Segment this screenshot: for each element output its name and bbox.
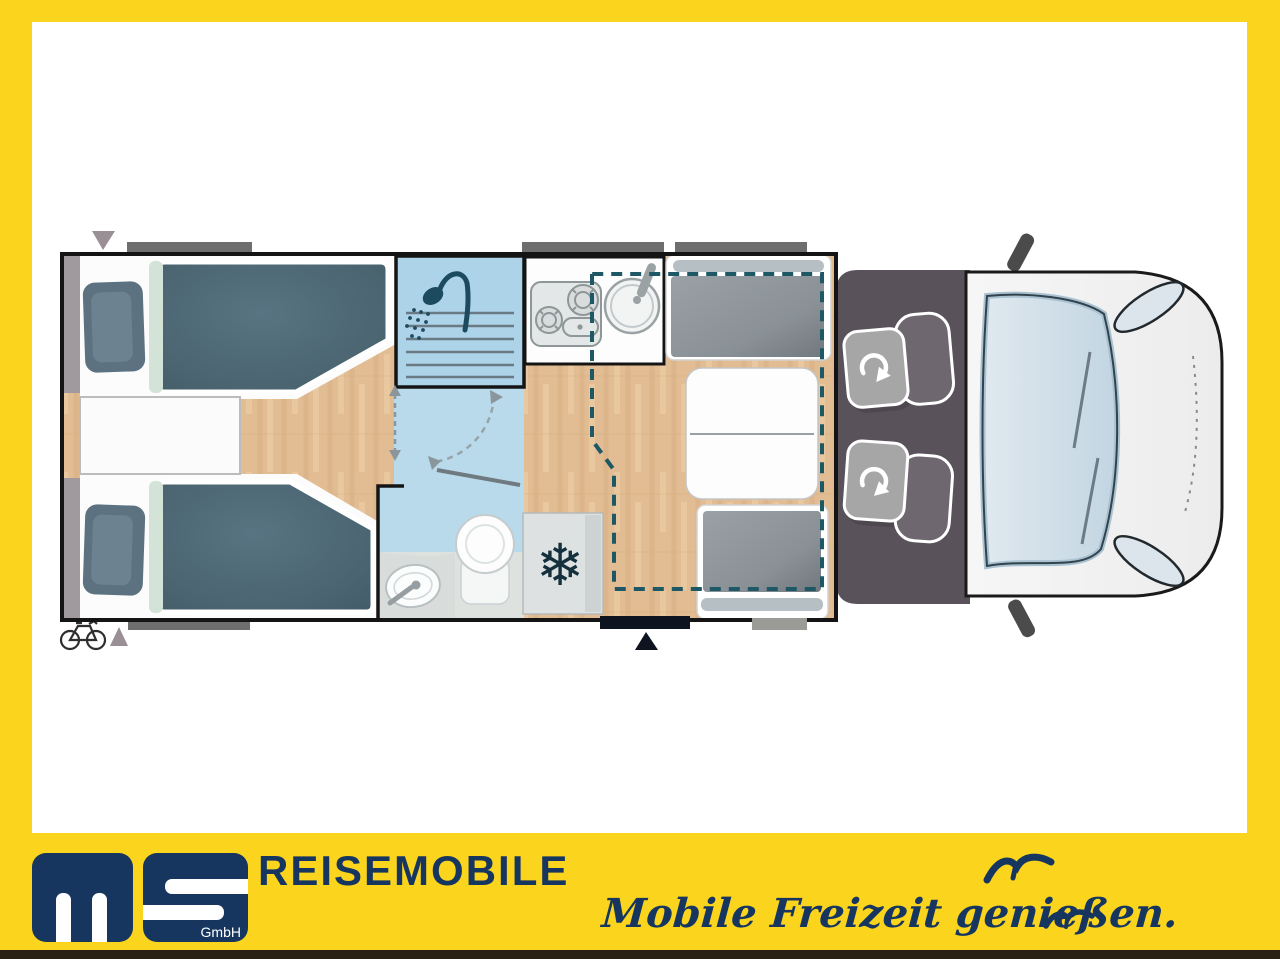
mirror-bottom-icon bbox=[1006, 597, 1037, 639]
headboard-bottom bbox=[149, 481, 163, 613]
toilet bbox=[456, 515, 514, 604]
snowflake-icon: ❄ bbox=[536, 531, 585, 599]
marker-triangle-bottom bbox=[110, 627, 128, 646]
dinette-rear-bench bbox=[666, 255, 831, 360]
bottom-dark-strip bbox=[0, 950, 1280, 959]
refrigerator: ❄ bbox=[523, 513, 603, 614]
wardrobe-strip-bottom bbox=[64, 478, 82, 619]
seagull-icon-large bbox=[983, 850, 1055, 888]
entry-door bbox=[600, 616, 690, 629]
logo-m-block bbox=[32, 853, 133, 942]
logo-gmbh-label: GmbH bbox=[201, 924, 241, 940]
dealer-floorplan-card: ❄ bbox=[0, 0, 1280, 959]
nightstand bbox=[80, 397, 240, 474]
wardrobe-strip-top bbox=[64, 256, 82, 393]
dinette-front-bench bbox=[697, 505, 828, 619]
ms-logo: GmbH bbox=[32, 853, 248, 943]
windshield bbox=[983, 295, 1118, 566]
logo-s-block: GmbH bbox=[136, 853, 248, 942]
dinette-table bbox=[686, 368, 818, 499]
mirror-top-icon bbox=[1005, 231, 1036, 273]
brand-title: REISEMOBILE bbox=[258, 847, 569, 895]
headboard-top bbox=[149, 261, 163, 393]
pillow-bottom bbox=[82, 504, 145, 596]
entry-arrow-icon bbox=[635, 632, 658, 650]
vehicle-front bbox=[966, 231, 1222, 639]
entry-step bbox=[752, 618, 807, 630]
marker-triangle-top bbox=[92, 231, 115, 250]
bathroom bbox=[378, 256, 524, 619]
bicycle-icon bbox=[61, 621, 105, 649]
pillow-top bbox=[82, 281, 145, 373]
seagull-icon-small bbox=[1043, 906, 1095, 934]
motorhome-floorplan: ❄ bbox=[40, 222, 1240, 658]
